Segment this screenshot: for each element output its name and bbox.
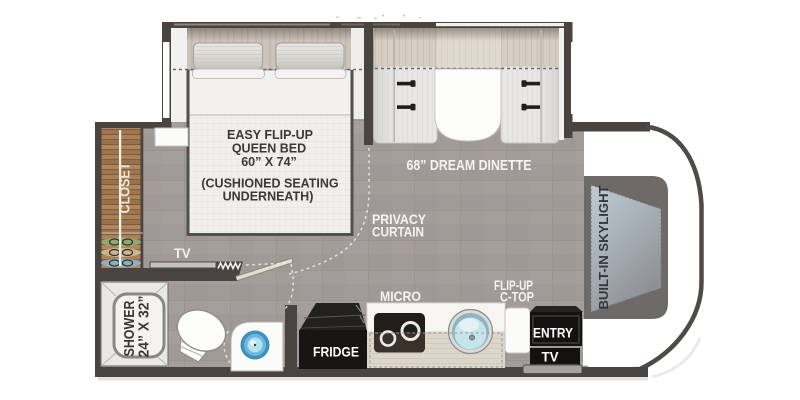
svg-text:UNDERNEATH): UNDERNEATH)	[223, 190, 314, 204]
svg-text:TV: TV	[542, 350, 559, 365]
svg-text:68” DREAM DINETTE: 68” DREAM DINETTE	[407, 157, 532, 174]
svg-text:CURTAIN: CURTAIN	[372, 224, 424, 240]
svg-text:MICRO: MICRO	[380, 288, 421, 304]
svg-text:ENTRY: ENTRY	[533, 325, 574, 341]
svg-text:EASY FLIP-UP: EASY FLIP-UP	[227, 128, 313, 142]
svg-text:CLOSET: CLOSET	[118, 162, 134, 213]
svg-text:24” X 32”: 24” X 32”	[136, 296, 153, 358]
svg-text:60” X 74”: 60” X 74”	[241, 155, 297, 169]
svg-text:BUILT-IN SKYLIGHT: BUILT-IN SKYLIGHT	[596, 185, 611, 309]
svg-text:(CUSHIONED SEATING: (CUSHIONED SEATING	[201, 177, 338, 191]
svg-text:TV: TV	[174, 245, 191, 261]
svg-text:C-TOP: C-TOP	[500, 289, 534, 305]
svg-text:QUEEN BED: QUEEN BED	[232, 142, 306, 156]
svg-text:FRIDGE: FRIDGE	[313, 344, 359, 360]
